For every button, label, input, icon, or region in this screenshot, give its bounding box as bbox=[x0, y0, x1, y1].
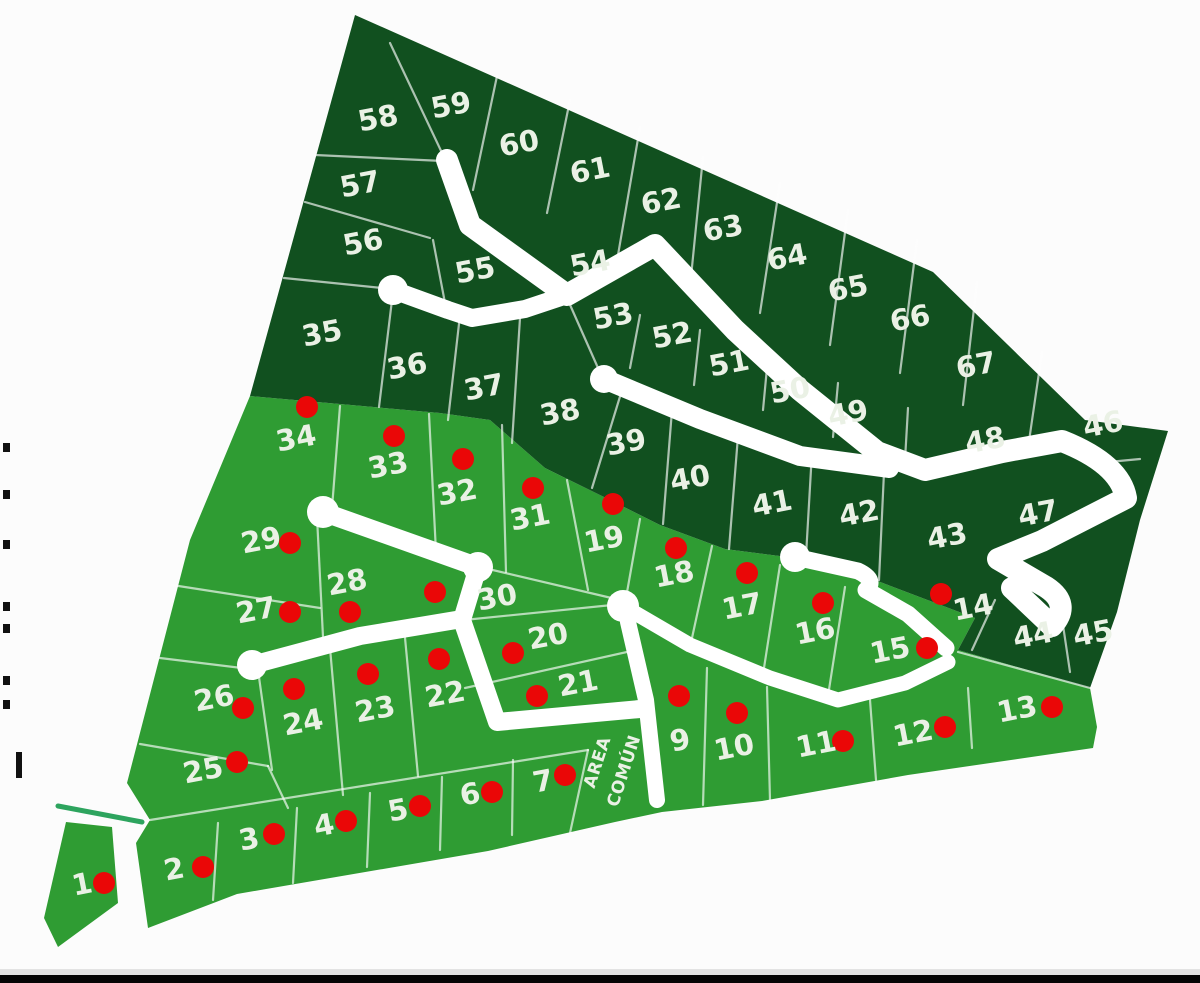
edge-text-mark bbox=[3, 540, 10, 549]
edge-text-mark bbox=[3, 700, 10, 709]
lot-status-dot-22 bbox=[428, 648, 450, 670]
lot-status-dot-14 bbox=[930, 583, 952, 605]
road-node bbox=[237, 650, 267, 680]
lot-status-dot-6 bbox=[481, 781, 503, 803]
lot-label-45: 45 bbox=[1070, 612, 1116, 653]
plat-map-stage: 1234567910111213141516171819202122232425… bbox=[0, 0, 1200, 983]
lot-status-dot-32 bbox=[452, 448, 474, 470]
edge-text-mark bbox=[3, 443, 10, 452]
lot-status-dot-33 bbox=[383, 425, 405, 447]
bottom-black-bar bbox=[0, 975, 1200, 983]
plat-svg: 1234567910111213141516171819202122232425… bbox=[0, 0, 1200, 983]
entrance-line bbox=[58, 806, 142, 822]
lot-status-dot-17 bbox=[736, 562, 758, 584]
road-node bbox=[590, 365, 618, 393]
edge-text-mark bbox=[3, 602, 10, 611]
lot-status-dot-30 bbox=[424, 581, 446, 603]
lot-status-dot-28 bbox=[339, 601, 361, 623]
lot-status-dot-34 bbox=[296, 396, 318, 418]
lot-status-dot-7 bbox=[554, 764, 576, 786]
road-node bbox=[780, 542, 810, 572]
lot-status-dot-12 bbox=[934, 716, 956, 738]
lot-status-dot-19 bbox=[602, 493, 624, 515]
road-node bbox=[463, 552, 493, 582]
road-node bbox=[307, 496, 339, 528]
lot-status-dot-20 bbox=[502, 642, 524, 664]
lot-status-dot-31 bbox=[522, 477, 544, 499]
lot-boundary-line bbox=[512, 760, 513, 835]
edge-text-bar bbox=[16, 752, 22, 778]
lot-status-dot-1 bbox=[93, 872, 115, 894]
lot-status-dot-24 bbox=[283, 678, 305, 700]
bottom-gray-strip bbox=[0, 969, 1200, 975]
road-node bbox=[607, 590, 639, 622]
lot-status-dot-27 bbox=[279, 601, 301, 623]
lot-status-dot-3 bbox=[263, 823, 285, 845]
edge-text-mark bbox=[3, 624, 10, 633]
lot-status-dot-2 bbox=[192, 856, 214, 878]
lot-status-dot-13 bbox=[1041, 696, 1063, 718]
road-node bbox=[378, 275, 408, 305]
lot-status-dot-10 bbox=[726, 702, 748, 724]
lot-status-dot-9 bbox=[668, 685, 690, 707]
lot-status-dot-23 bbox=[357, 663, 379, 685]
lot-status-dot-21 bbox=[526, 685, 548, 707]
lot-status-dot-15 bbox=[916, 637, 938, 659]
lot-status-dot-25 bbox=[226, 751, 248, 773]
edge-text-mark bbox=[3, 676, 10, 685]
edge-text-mark bbox=[3, 490, 10, 499]
lot-status-dot-4 bbox=[335, 810, 357, 832]
lot-status-dot-5 bbox=[409, 795, 431, 817]
